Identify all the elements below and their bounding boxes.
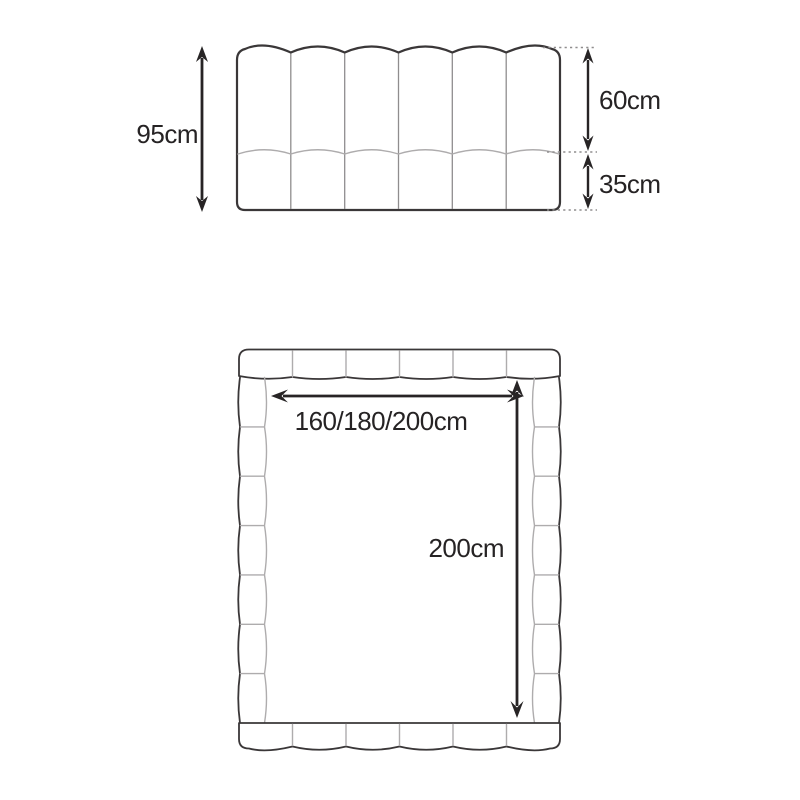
front-view xyxy=(196,45,597,212)
rail-outer-edge xyxy=(559,378,561,724)
rail-segment-dividers xyxy=(535,427,559,674)
width-dimension-arrow xyxy=(271,390,524,403)
lower-section-dimension-arrow xyxy=(583,154,594,209)
top-view-length-label: 200cm xyxy=(404,533,504,563)
top-view-width-label: 160/180/200cm xyxy=(251,406,511,436)
rail-segment-dividers xyxy=(241,427,265,674)
right-side-rail xyxy=(533,378,561,724)
front-total-height-label: 95cm xyxy=(126,119,198,149)
front-lower-section-label: 35cm xyxy=(599,169,689,199)
upper-section-dimension-arrow xyxy=(583,48,594,151)
front-upper-section-label: 60cm xyxy=(599,85,689,115)
diagram-drawing xyxy=(0,0,800,800)
rail-outer-edge xyxy=(238,378,240,724)
length-dimension-arrow xyxy=(511,380,524,718)
rail-inner-edge xyxy=(533,378,535,724)
bed-dimension-diagram: 95cm 60cm 35cm 160/180/200cm 200cm xyxy=(0,0,800,800)
